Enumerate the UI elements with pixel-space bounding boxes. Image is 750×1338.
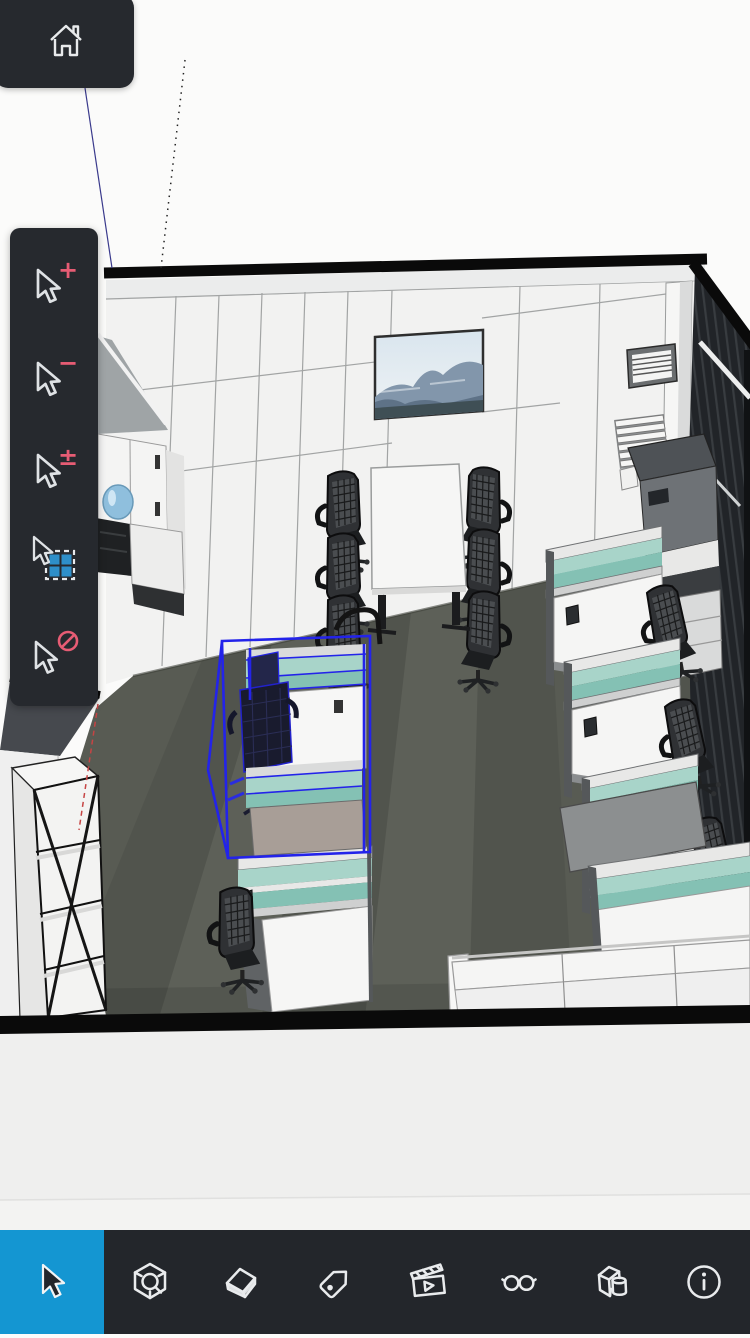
info-circle-icon xyxy=(680,1258,728,1306)
water-cooler[interactable] xyxy=(103,485,133,519)
glasses-icon xyxy=(495,1258,543,1306)
shelving-unit[interactable] xyxy=(12,757,106,1020)
tags-tool-button[interactable] xyxy=(289,1230,381,1334)
select-box-button[interactable] xyxy=(22,527,86,591)
components-tool-button[interactable] xyxy=(565,1230,657,1334)
cursor-marquee-icon xyxy=(26,531,82,587)
select-subtract-button[interactable]: − xyxy=(22,343,86,407)
cursor-none-icon xyxy=(26,624,82,680)
eraser-tool-button[interactable] xyxy=(196,1230,288,1334)
window-picture[interactable] xyxy=(375,330,483,419)
select-cursor-icon xyxy=(28,1258,76,1306)
model-viewport[interactable] xyxy=(0,0,750,1334)
counter xyxy=(130,524,184,594)
info-button[interactable] xyxy=(658,1230,750,1334)
selection-flyout: + − ± xyxy=(10,228,98,706)
cursor-plus-minus-icon: ± xyxy=(26,439,82,495)
clapperboard-play-icon xyxy=(403,1258,451,1306)
home-button[interactable] xyxy=(0,0,134,88)
scenes-tool-button[interactable] xyxy=(381,1230,473,1334)
cube-magnifier-icon xyxy=(126,1258,174,1306)
model-scene[interactable] xyxy=(0,0,750,1334)
zoom-model-button[interactable] xyxy=(104,1230,196,1334)
svg-text:+: + xyxy=(58,256,78,284)
coffee-machine[interactable] xyxy=(96,518,132,576)
tag-icon xyxy=(311,1258,359,1306)
eraser-icon xyxy=(218,1258,266,1306)
select-add-subtract-button[interactable]: ± xyxy=(22,435,86,499)
box-cylinder-icon xyxy=(588,1258,636,1306)
bottom-toolbar xyxy=(0,1230,750,1334)
svg-text:±: ± xyxy=(58,443,78,471)
vent-grille xyxy=(627,344,677,388)
select-tool-button[interactable] xyxy=(0,1230,104,1334)
cursor-minus-icon: − xyxy=(26,347,82,403)
home-icon xyxy=(40,18,88,64)
select-add-button[interactable]: + xyxy=(22,250,86,314)
ar-view-button[interactable] xyxy=(473,1230,565,1334)
cursor-plus-icon: + xyxy=(26,254,82,310)
svg-text:−: − xyxy=(58,349,78,377)
select-none-button[interactable] xyxy=(22,620,86,684)
